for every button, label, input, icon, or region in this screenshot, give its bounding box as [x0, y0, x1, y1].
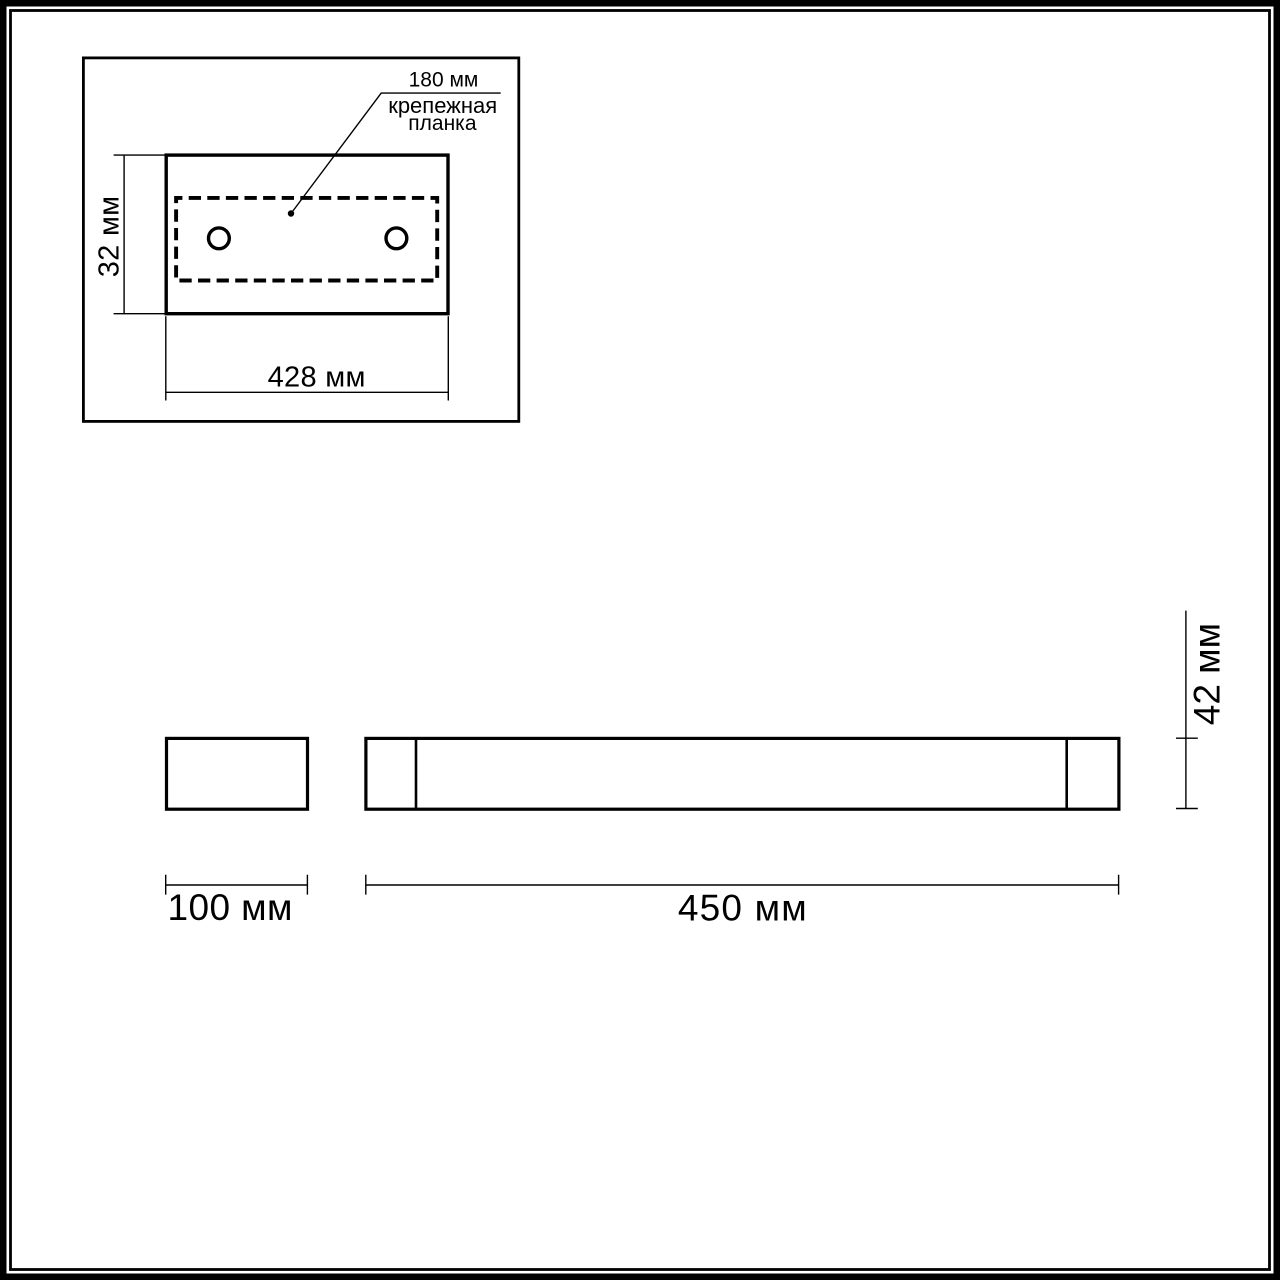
svg-text:32 мм: 32 мм: [94, 196, 126, 278]
svg-text:428 мм: 428 мм: [268, 362, 366, 394]
svg-text:100 мм: 100 мм: [168, 887, 293, 928]
svg-text:42 мм: 42 мм: [1186, 623, 1227, 725]
svg-text:450 мм: 450 мм: [678, 887, 808, 928]
svg-text:180 мм: 180 мм: [409, 68, 479, 91]
svg-text:планка: планка: [408, 112, 477, 135]
